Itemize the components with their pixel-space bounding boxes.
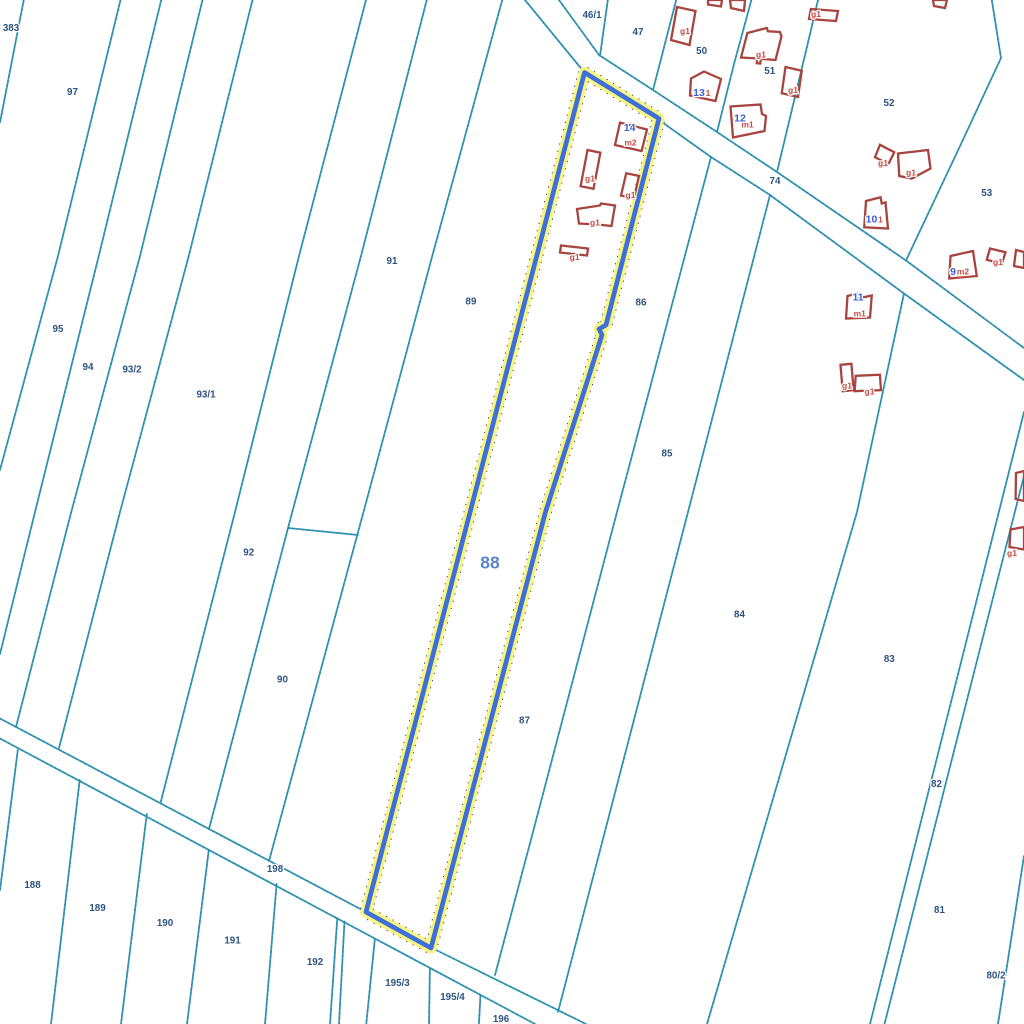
svg-text:g1: g1 xyxy=(590,218,600,228)
svg-text:190: 190 xyxy=(157,918,174,929)
svg-text:50: 50 xyxy=(696,46,707,57)
svg-text:g1: g1 xyxy=(842,380,852,390)
svg-text:198: 198 xyxy=(267,864,284,875)
svg-text:g1: g1 xyxy=(906,167,916,177)
svg-text:86: 86 xyxy=(636,297,647,308)
svg-text:g1: g1 xyxy=(993,257,1003,267)
svg-text:52: 52 xyxy=(884,98,895,109)
svg-text:g1: g1 xyxy=(570,252,580,262)
svg-text:195/4: 195/4 xyxy=(440,992,465,1003)
svg-text:11: 11 xyxy=(852,292,863,304)
svg-text:g1: g1 xyxy=(1007,548,1017,558)
svg-text:91: 91 xyxy=(387,256,398,267)
svg-text:g1: g1 xyxy=(585,174,595,184)
svg-text:51: 51 xyxy=(764,66,775,77)
svg-text:m1: m1 xyxy=(854,309,867,319)
svg-text:g1: g1 xyxy=(865,386,875,396)
svg-text:g1: g1 xyxy=(626,190,636,200)
svg-text:81: 81 xyxy=(934,905,945,916)
svg-text:188: 188 xyxy=(24,880,41,891)
svg-text:93/1: 93/1 xyxy=(196,389,216,400)
svg-text:88: 88 xyxy=(480,553,500,573)
svg-text:g1: g1 xyxy=(811,9,821,19)
svg-text:m2: m2 xyxy=(957,267,970,277)
svg-text:82: 82 xyxy=(931,779,942,790)
svg-text:g1: g1 xyxy=(756,50,766,60)
svg-text:1: 1 xyxy=(706,88,711,98)
svg-text:93/2: 93/2 xyxy=(122,364,142,375)
svg-text:80/2: 80/2 xyxy=(986,970,1006,981)
svg-text:10: 10 xyxy=(866,214,878,226)
svg-text:94: 94 xyxy=(83,362,94,373)
svg-text:95: 95 xyxy=(53,324,64,335)
svg-text:189: 189 xyxy=(89,903,106,914)
svg-text:g1: g1 xyxy=(788,85,798,95)
svg-text:14: 14 xyxy=(624,122,636,134)
svg-text:90: 90 xyxy=(277,674,288,685)
svg-text:13: 13 xyxy=(693,87,705,99)
svg-text:192: 192 xyxy=(307,957,324,968)
svg-text:92: 92 xyxy=(243,547,254,558)
svg-text:74: 74 xyxy=(770,176,781,187)
svg-text:46/1: 46/1 xyxy=(582,10,602,21)
svg-text:m2: m2 xyxy=(624,138,637,148)
svg-text:191: 191 xyxy=(224,935,241,946)
svg-text:89: 89 xyxy=(466,296,477,307)
svg-text:83: 83 xyxy=(884,654,895,665)
svg-text:85: 85 xyxy=(662,448,673,459)
svg-text:1: 1 xyxy=(878,215,883,225)
svg-text:g1: g1 xyxy=(680,26,690,36)
svg-text:383: 383 xyxy=(3,23,20,34)
svg-text:g1: g1 xyxy=(878,158,888,168)
svg-text:53: 53 xyxy=(981,188,992,199)
svg-text:9: 9 xyxy=(950,266,956,278)
svg-text:195/3: 195/3 xyxy=(385,978,410,989)
svg-text:47: 47 xyxy=(633,27,644,38)
svg-text:84: 84 xyxy=(734,609,745,620)
svg-text:97: 97 xyxy=(67,87,78,98)
svg-text:196: 196 xyxy=(493,1014,510,1024)
svg-text:m1: m1 xyxy=(741,120,754,130)
svg-text:87: 87 xyxy=(519,715,530,726)
